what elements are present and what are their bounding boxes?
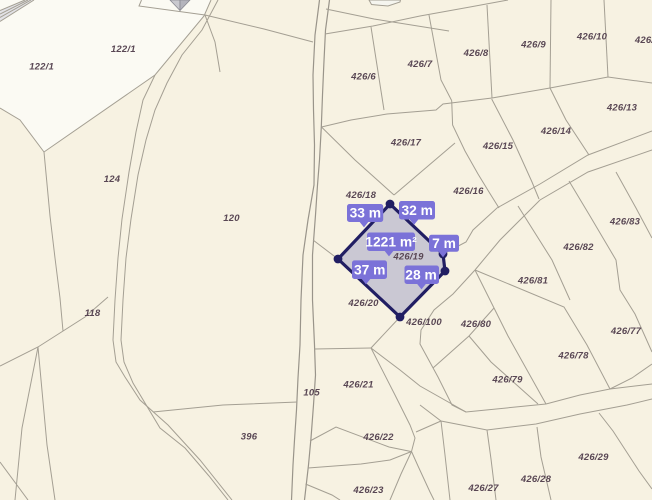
svg-text:118: 118 [85,308,101,319]
svg-text:120: 120 [223,213,240,224]
svg-text:28 m: 28 m [405,267,436,282]
svg-text:105: 105 [303,388,320,399]
svg-text:426/18: 426/18 [345,190,377,201]
svg-text:426/22: 426/22 [362,432,394,443]
svg-text:124: 124 [104,174,121,185]
svg-text:426/9: 426/9 [520,40,546,51]
svg-text:37 m: 37 m [354,262,385,277]
svg-text:122/1: 122/1 [111,44,136,55]
svg-text:426/28: 426/28 [520,474,552,485]
svg-text:33 m: 33 m [350,206,381,221]
svg-text:426/83: 426/83 [609,217,641,228]
svg-text:426/81: 426/81 [517,275,548,286]
svg-text:122/1: 122/1 [29,62,54,73]
svg-text:7 m: 7 m [432,236,456,251]
svg-text:426/20: 426/20 [347,298,379,309]
svg-text:426/6: 426/6 [350,72,376,83]
svg-text:426/82: 426/82 [562,242,594,253]
svg-text:426/77: 426/77 [610,326,642,337]
svg-text:426/79: 426/79 [491,374,523,385]
svg-text:426/100: 426/100 [405,317,442,328]
svg-text:32 m: 32 m [401,203,432,218]
svg-text:396: 396 [241,432,258,443]
svg-text:426/12: 426/12 [634,35,652,46]
svg-text:426/13: 426/13 [606,103,638,114]
svg-text:426/19: 426/19 [392,252,424,263]
svg-text:426/78: 426/78 [557,351,589,362]
svg-text:426/7: 426/7 [407,59,433,70]
svg-text:426/27: 426/27 [467,483,499,494]
svg-text:426/15: 426/15 [482,141,514,152]
svg-text:426/23: 426/23 [352,485,384,496]
svg-text:426/29: 426/29 [577,452,609,463]
svg-text:1221 m²: 1221 m² [365,234,417,249]
svg-text:426/14: 426/14 [540,126,572,137]
svg-text:426/80: 426/80 [460,319,492,330]
svg-text:426/10: 426/10 [576,32,608,43]
svg-text:426/21: 426/21 [342,380,373,391]
svg-text:426/8: 426/8 [463,48,489,59]
svg-text:426/16: 426/16 [452,186,484,197]
svg-text:426/17: 426/17 [390,138,422,149]
